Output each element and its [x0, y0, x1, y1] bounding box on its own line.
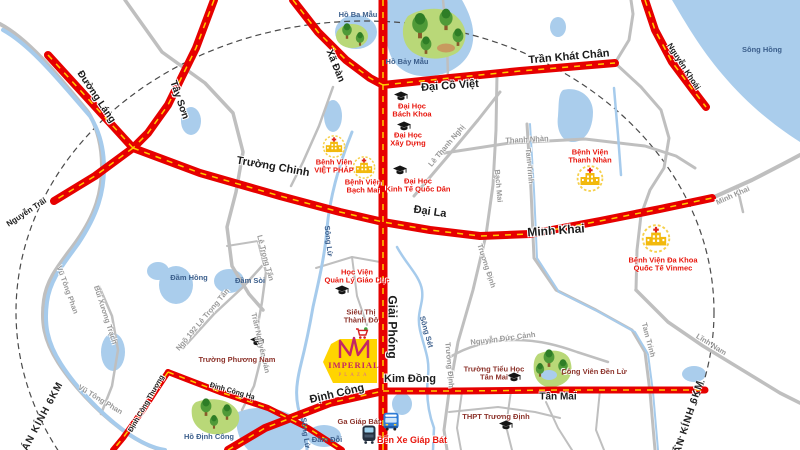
hanoi-location-map: IMPERIAL PLAZA [0, 0, 800, 450]
radius-circle [16, 21, 714, 450]
map-canvas: IMPERIAL PLAZA [0, 0, 800, 450]
imperial-title: IMPERIAL [328, 360, 379, 370]
imperial-subtitle: PLAZA [338, 373, 369, 378]
main-road-layer [48, 0, 712, 450]
